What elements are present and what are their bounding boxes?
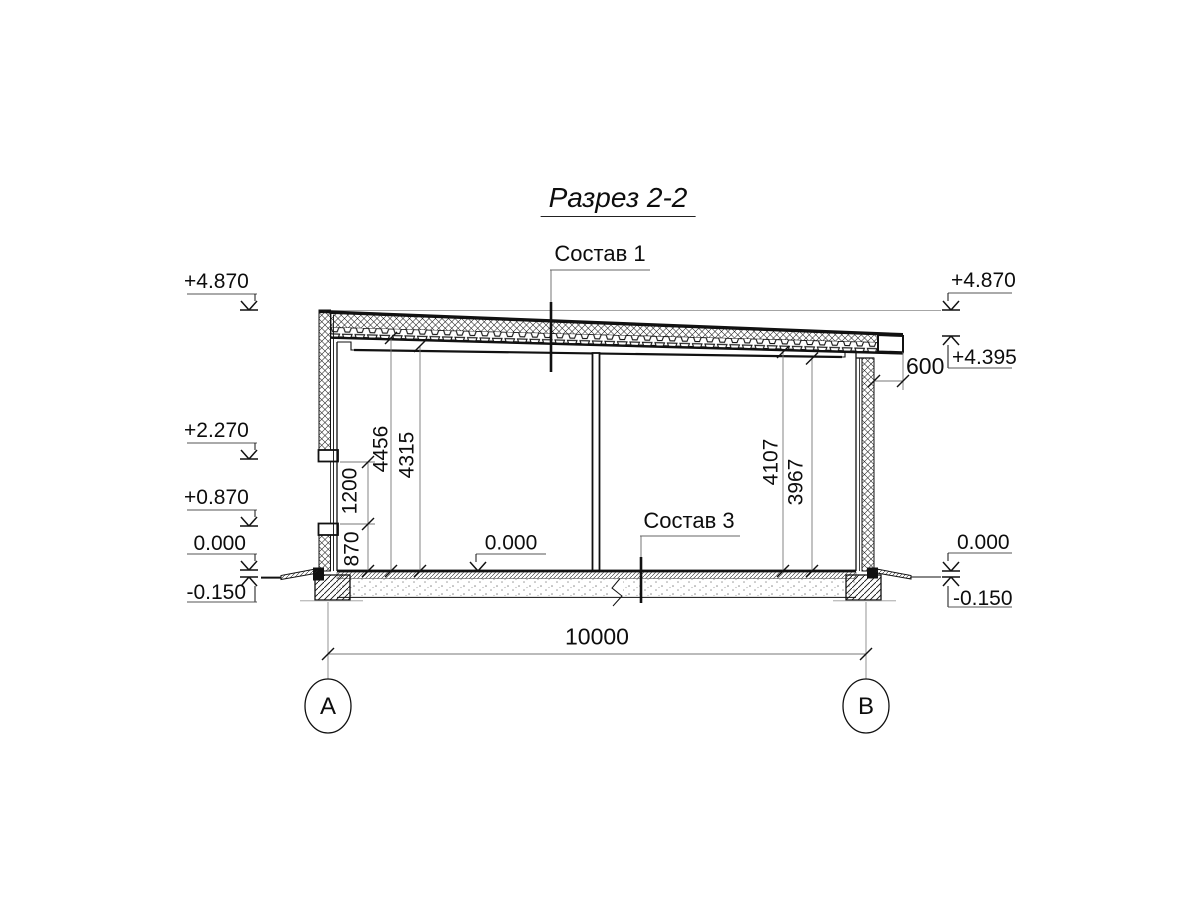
section-drawing-sheet: Разрез 2-2 Состав 1 Состав 3 +4.870 +2.2… (0, 0, 1200, 900)
middle-column (593, 353, 600, 571)
dimension-lines (328, 338, 903, 654)
left-wall (319, 310, 339, 571)
right-foundation (846, 575, 881, 600)
elevation-floor-center: 0.000 (485, 533, 538, 554)
right-wall (856, 353, 874, 571)
dim-left-height-outer: 4456 (371, 426, 392, 473)
elevation-left-parapet: +4.870 (184, 271, 246, 292)
elevation-left-window-sill: +0.870 (184, 487, 246, 508)
dimension-ticks (322, 332, 909, 660)
axis-label-b: В (858, 695, 874, 719)
dim-roof-overhang: 600 (906, 355, 944, 378)
axes (305, 602, 889, 733)
callout-leaders (550, 270, 740, 603)
section-linework (0, 0, 1200, 900)
roof-assembly (319, 310, 903, 357)
dim-window-height: 1200 (340, 468, 361, 515)
roof-edge-cap (878, 335, 903, 352)
elevation-right-ground: -0.150 (953, 588, 1013, 609)
elevation-right-floor: 0.000 (957, 532, 1010, 553)
elevation-left-ground: -0.150 (184, 582, 246, 603)
dim-right-height-outer: 4107 (761, 439, 782, 486)
elevation-right-parapet: +4.870 (951, 270, 1016, 291)
window-sill (319, 524, 339, 536)
dim-left-height-inner: 4315 (397, 432, 418, 479)
elevation-left-floor: 0.000 (184, 533, 246, 554)
label-floor-composition: Состав 3 (643, 510, 734, 532)
label-roof-composition: Состав 1 (554, 243, 645, 265)
dim-right-height-inner: 3967 (786, 459, 807, 506)
axis-label-a: А (320, 695, 336, 719)
dim-sill-height: 870 (342, 531, 363, 566)
floor-base-course (337, 579, 856, 598)
dim-span: 10000 (565, 626, 629, 649)
drawing-title: Разрез 2-2 (541, 184, 696, 217)
left-blind-area (281, 569, 318, 580)
window-head (319, 450, 339, 462)
elevation-right-roof-low: +4.395 (952, 347, 1017, 368)
elevation-left-window-head: +2.270 (184, 420, 246, 441)
